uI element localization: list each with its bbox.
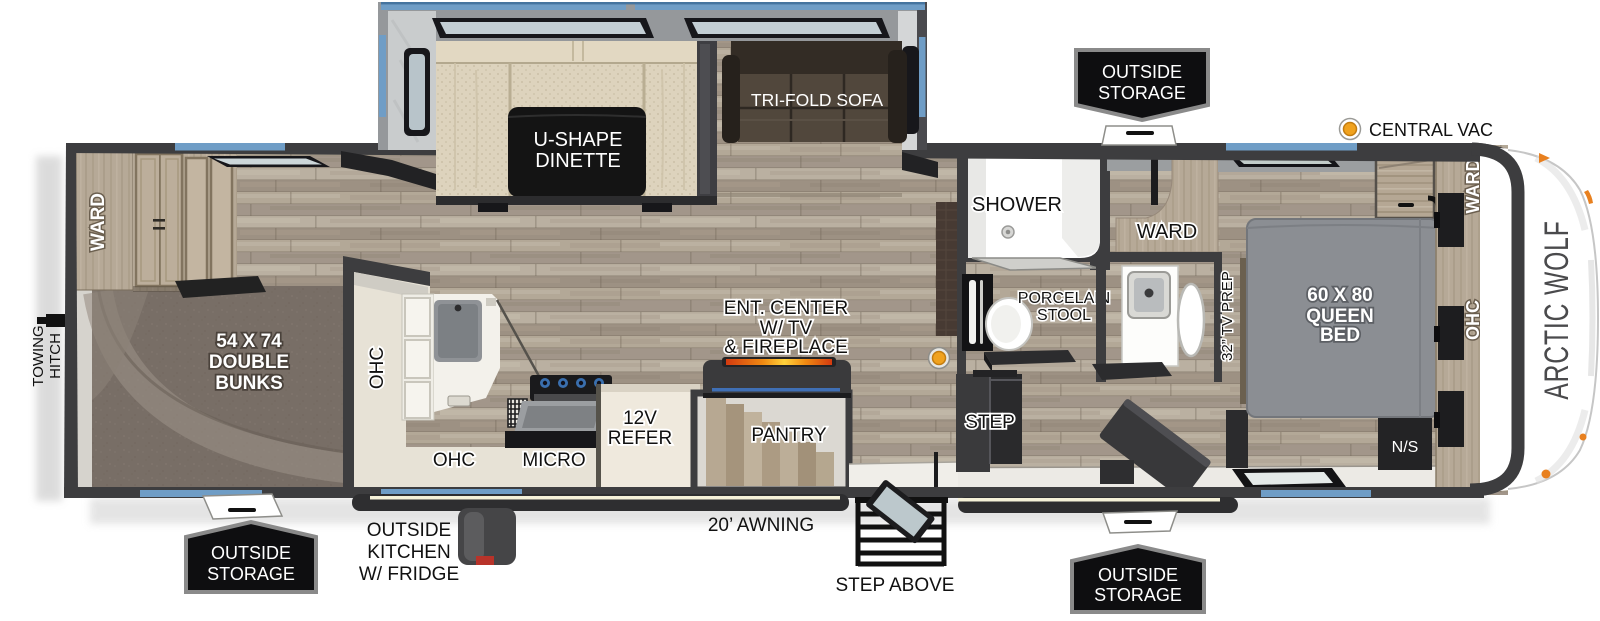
- svg-text:TOWING: TOWING: [30, 325, 47, 386]
- svg-text:20’ AWNING: 20’ AWNING: [708, 515, 814, 536]
- svg-text:STORAGE: STORAGE: [1094, 585, 1182, 605]
- svg-text:STORAGE: STORAGE: [207, 564, 295, 584]
- svg-text:KITCHEN: KITCHEN: [367, 542, 450, 563]
- svg-text:60 X 80: 60 X 80: [1307, 285, 1373, 306]
- svg-text:TRI-FOLD SOFA: TRI-FOLD SOFA: [751, 90, 884, 110]
- svg-text:DINETTE: DINETTE: [535, 150, 621, 172]
- svg-text:STORAGE: STORAGE: [1098, 83, 1186, 103]
- svg-text:WARD: WARD: [88, 193, 109, 251]
- svg-text:HITCH: HITCH: [47, 333, 64, 379]
- svg-text:WARD: WARD: [1137, 221, 1197, 243]
- svg-text:W/ TV: W/ TV: [760, 318, 813, 339]
- svg-text:BED: BED: [1320, 325, 1360, 346]
- svg-text:12V: 12V: [623, 408, 657, 429]
- svg-text:ARCTIC WOLF: ARCTIC WOLF: [1538, 220, 1576, 399]
- svg-text:PANTRY: PANTRY: [751, 425, 827, 446]
- svg-text:OUTSIDE: OUTSIDE: [367, 520, 451, 541]
- svg-text:OUTSIDE: OUTSIDE: [1102, 62, 1182, 82]
- svg-text:DOUBLE: DOUBLE: [209, 352, 289, 373]
- svg-text:U-SHAPE: U-SHAPE: [534, 129, 623, 151]
- svg-text:ENT. CENTER: ENT. CENTER: [724, 298, 849, 319]
- svg-text:REFER: REFER: [608, 428, 672, 449]
- svg-text:OHC: OHC: [433, 450, 475, 471]
- svg-text:BUNKS: BUNKS: [215, 373, 283, 394]
- svg-text:OUTSIDE: OUTSIDE: [1098, 565, 1178, 585]
- svg-text:MICRO: MICRO: [522, 450, 585, 471]
- svg-text:& FIREPLACE: & FIREPLACE: [724, 337, 848, 358]
- svg-text:32” TV PREP: 32” TV PREP: [1219, 271, 1236, 361]
- svg-text:QUEEN: QUEEN: [1306, 306, 1374, 327]
- svg-text:54 X 74: 54 X 74: [216, 331, 282, 352]
- svg-text:OUTSIDE: OUTSIDE: [211, 543, 291, 563]
- svg-text:W/ FRIDGE: W/ FRIDGE: [359, 564, 459, 585]
- svg-text:OHC: OHC: [367, 347, 388, 389]
- svg-text:N/S: N/S: [1392, 439, 1419, 456]
- svg-text:SHOWER: SHOWER: [972, 194, 1062, 216]
- svg-text:STOOL: STOOL: [1037, 307, 1091, 324]
- svg-text:CENTRAL VAC: CENTRAL VAC: [1369, 120, 1493, 140]
- svg-text:STEP ABOVE: STEP ABOVE: [836, 575, 955, 596]
- svg-text:STEP: STEP: [965, 412, 1015, 433]
